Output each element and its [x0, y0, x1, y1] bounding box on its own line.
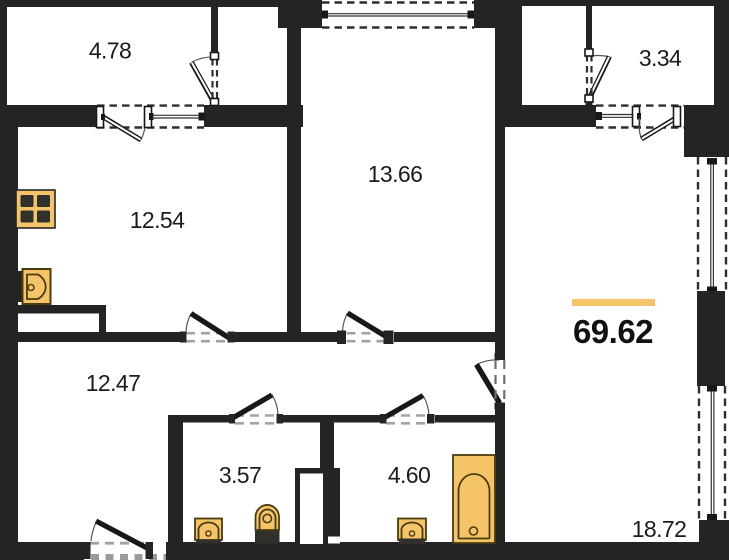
svg-text:4.60: 4.60: [388, 462, 430, 488]
svg-text:12.47: 12.47: [86, 370, 141, 396]
svg-text:3.34: 3.34: [639, 45, 682, 71]
svg-text:13.66: 13.66: [368, 161, 423, 187]
svg-text:18.72: 18.72: [632, 516, 687, 542]
svg-text:3.57: 3.57: [219, 462, 261, 488]
svg-text:69.62: 69.62: [573, 313, 653, 350]
svg-text:12.54: 12.54: [130, 207, 185, 233]
svg-text:4.78: 4.78: [89, 38, 131, 64]
